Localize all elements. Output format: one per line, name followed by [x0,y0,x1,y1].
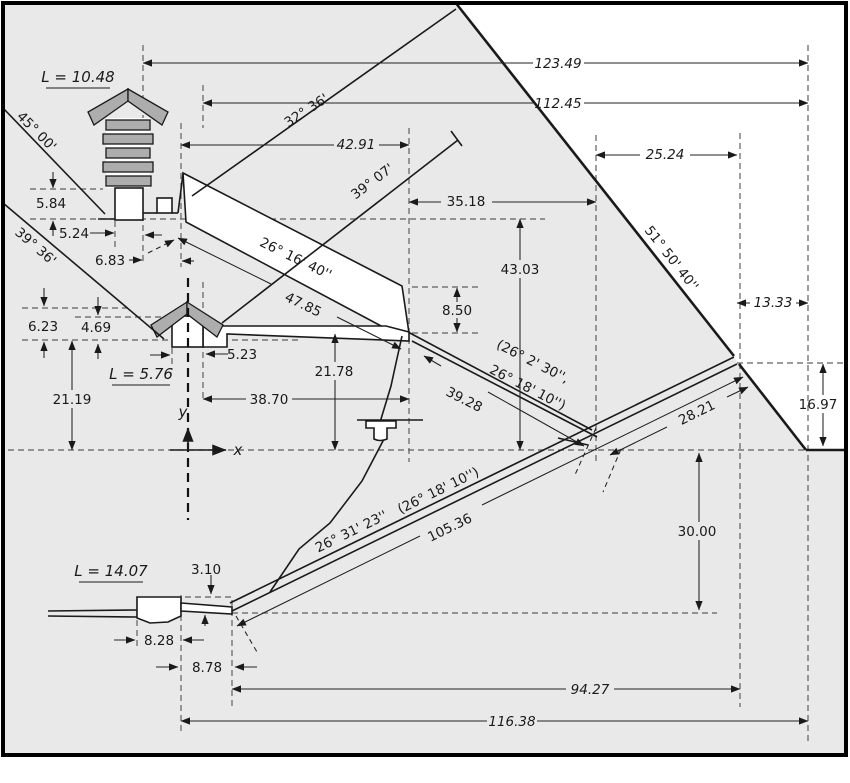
axis-x-label: x [233,441,243,459]
pyramid-cross-section-diagram: L = 10.48 L = 5.76 L = 14.07 123.49 112.… [0,0,850,783]
dim-6-83: 6.83 [95,253,125,269]
label-l-middle: L = 5.76 [109,365,173,383]
dim-112-45: 112.45 [534,96,581,112]
king-chamber [115,188,143,220]
dim-43-03: 43.03 [501,262,540,278]
dim-5-23: 5.23 [227,347,257,363]
dim-123-49: 123.49 [534,56,581,72]
relieving-slabs [103,120,153,186]
subterranean-chamber [137,597,181,623]
dim-5-24: 5.24 [59,226,89,242]
dim-4-69: 4.69 [81,320,111,336]
dim-21-19: 21.19 [53,392,92,408]
dim-8-78: 8.78 [192,660,222,676]
dim-16-97: 16.97 [799,397,838,413]
dim-21-78: 21.78 [315,364,354,380]
axis-y-label: y [178,403,189,421]
label-l-upper: L = 10.48 [41,68,114,86]
dim-6-23: 6.23 [28,319,58,335]
dim-8-50: 8.50 [442,303,472,319]
dim-35-18: 35.18 [447,194,486,210]
dim-8-28: 8.28 [144,633,174,649]
dim-38-70: 38.70 [250,392,289,408]
label-l-lower: L = 14.07 [74,562,148,580]
dim-42-91: 42.91 [337,137,376,153]
dim-116-38: 116.38 [488,714,535,730]
dim-30-00: 30.00 [678,524,717,540]
dim-94-27: 94.27 [571,682,610,698]
dim-25-24: 25.24 [646,147,685,163]
pyramid-cross-section-figure: L = 10.48 L = 5.76 L = 14.07 123.49 112.… [0,0,850,783]
antechamber [157,198,172,213]
dim-3-10: 3.10 [191,562,221,578]
dim-5-84: 5.84 [36,196,66,212]
dim-13-33: 13.33 [754,295,793,311]
